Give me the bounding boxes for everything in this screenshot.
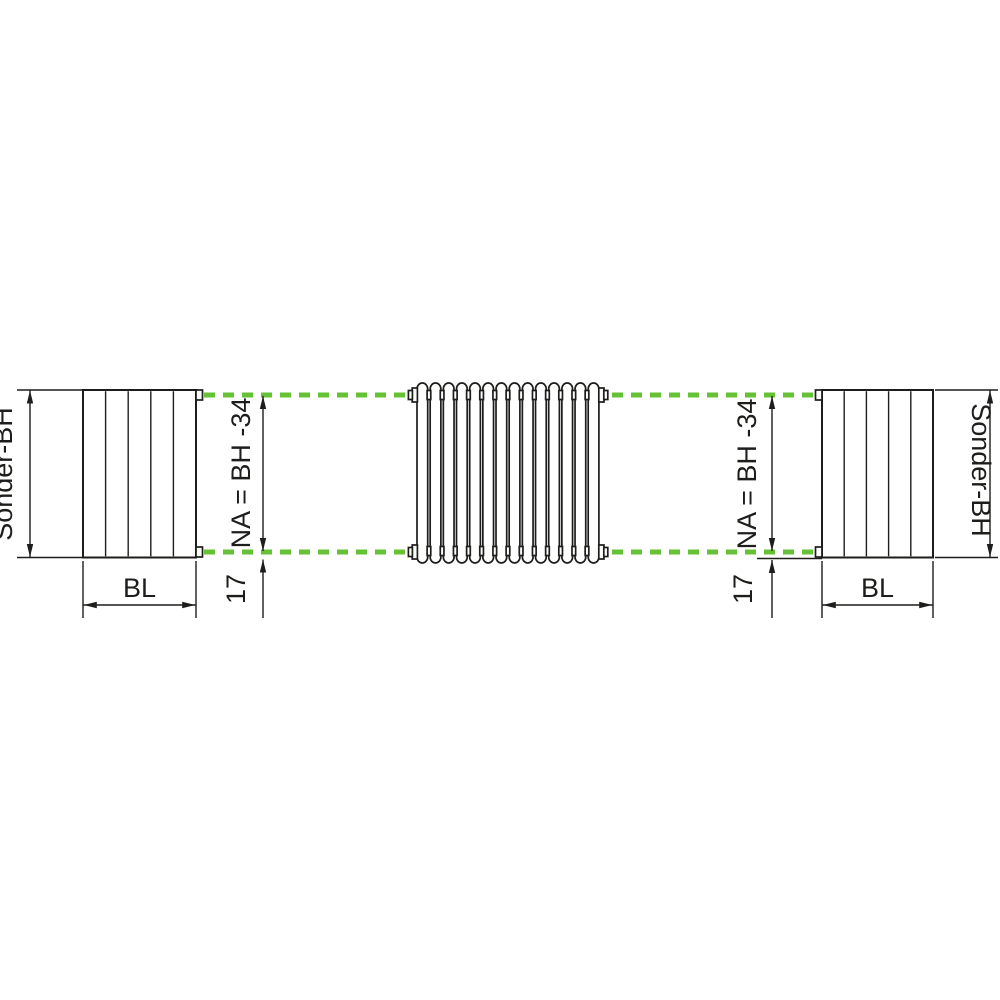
radiator-left-top-nipple-outer <box>408 391 412 400</box>
left-side-panel <box>83 390 203 558</box>
radiator-tube <box>575 383 586 563</box>
tube-connector-bottom <box>585 547 589 556</box>
arrow-up <box>769 396 775 409</box>
radiator-right-top-nipple-outer <box>604 391 608 400</box>
arrow-down <box>260 538 266 551</box>
arrow-left <box>84 602 97 608</box>
label-17-left: 17 <box>221 574 251 604</box>
arrow-left <box>823 602 836 608</box>
label-17-right: 17 <box>728 574 758 604</box>
tube-connector-top <box>493 391 497 400</box>
tube-connector-bottom <box>440 547 444 556</box>
tube-connector-top <box>467 391 471 400</box>
dimension-bl-right: BL <box>822 561 933 618</box>
right-panel-bottom-nipple <box>816 547 823 557</box>
arrow-down <box>987 544 993 557</box>
technical-drawing-canvas: Sonder-BH Sonder-BH BL BL NA = BH -34 <box>0 0 1000 1000</box>
radiator-tube <box>509 383 520 563</box>
tube-connector-top <box>453 391 457 400</box>
radiator-body <box>408 383 607 563</box>
tube-connector-bottom <box>506 547 510 556</box>
left-panel-bottom-nipple <box>196 547 203 557</box>
tube-connector-bottom <box>493 547 497 556</box>
arrow-right <box>919 602 932 608</box>
radiator-tube <box>496 383 507 563</box>
radiator-tube <box>470 383 481 563</box>
arrow-down <box>27 544 33 557</box>
radiator-tube <box>536 383 547 563</box>
dimension-sonder-bh-right: Sonder-BH <box>935 390 998 558</box>
dimension-na-left: NA = BH -34 <box>226 396 266 551</box>
tube-connector-top <box>480 391 484 400</box>
tube-connector-bottom <box>480 547 484 556</box>
radiator-tube <box>430 383 441 563</box>
tube-connector-top <box>546 391 550 400</box>
radiator-tube <box>443 383 454 563</box>
radiator-tube <box>562 383 573 563</box>
tube-connector-top <box>585 391 589 400</box>
tube-connector-bottom <box>467 547 471 556</box>
right-panel-top-nipple <box>816 390 823 400</box>
label-bl-right: BL <box>861 573 894 603</box>
left-panel-body <box>83 390 196 558</box>
radiator-tube <box>417 383 428 563</box>
dimension-17-right: 17 <box>728 559 822 619</box>
arrow-up <box>260 560 266 573</box>
arrow-down <box>769 538 775 551</box>
arrow-up <box>260 396 266 409</box>
dimension-17-left: 17 <box>221 560 266 619</box>
right-panel-body <box>822 390 933 558</box>
arrow-up <box>987 391 993 404</box>
tube-connector-top <box>532 391 536 400</box>
label-sonder-bh-right: Sonder-BH <box>966 403 996 537</box>
arrow-up <box>27 391 33 404</box>
radiator-tube <box>522 383 533 563</box>
dimension-na-right: NA = BH -34 <box>732 396 775 551</box>
label-bl-left: BL <box>123 573 156 603</box>
tube-connector-top <box>559 391 563 400</box>
radiator-tube <box>549 383 560 563</box>
radiator-dimension-diagram: Sonder-BH Sonder-BH BL BL NA = BH -34 <box>0 0 1000 1000</box>
label-na-left: NA = BH -34 <box>226 398 256 549</box>
left-panel-top-nipple <box>196 390 203 400</box>
tube-connector-top <box>506 391 510 400</box>
radiator-tubes <box>417 383 599 563</box>
radiator-left-bottom-nipple-outer <box>408 548 412 557</box>
arrow-right <box>182 602 195 608</box>
tube-connector-top <box>427 391 431 400</box>
radiator-right-bottom-nipple-outer <box>604 548 608 557</box>
tube-connector-bottom <box>519 547 523 556</box>
tube-connector-bottom <box>453 547 457 556</box>
tube-connector-bottom <box>546 547 550 556</box>
tube-connector-bottom <box>559 547 563 556</box>
tube-connector-top <box>572 391 576 400</box>
tube-connector-bottom <box>532 547 536 556</box>
radiator-tube <box>457 383 468 563</box>
label-na-right: NA = BH -34 <box>732 399 762 550</box>
tube-connector-bottom <box>572 547 576 556</box>
tube-connector-top <box>519 391 523 400</box>
radiator-tube <box>483 383 494 563</box>
arrow-up <box>769 560 775 573</box>
label-sonder-bh-left: Sonder-BH <box>0 407 18 541</box>
right-side-panel <box>816 390 934 558</box>
tube-connector-top <box>440 391 444 400</box>
dimension-bl-left: BL <box>83 561 196 618</box>
tube-connector-bottom <box>427 547 431 556</box>
radiator-tube <box>588 383 599 563</box>
dimension-sonder-bh-left: Sonder-BH <box>0 390 82 558</box>
